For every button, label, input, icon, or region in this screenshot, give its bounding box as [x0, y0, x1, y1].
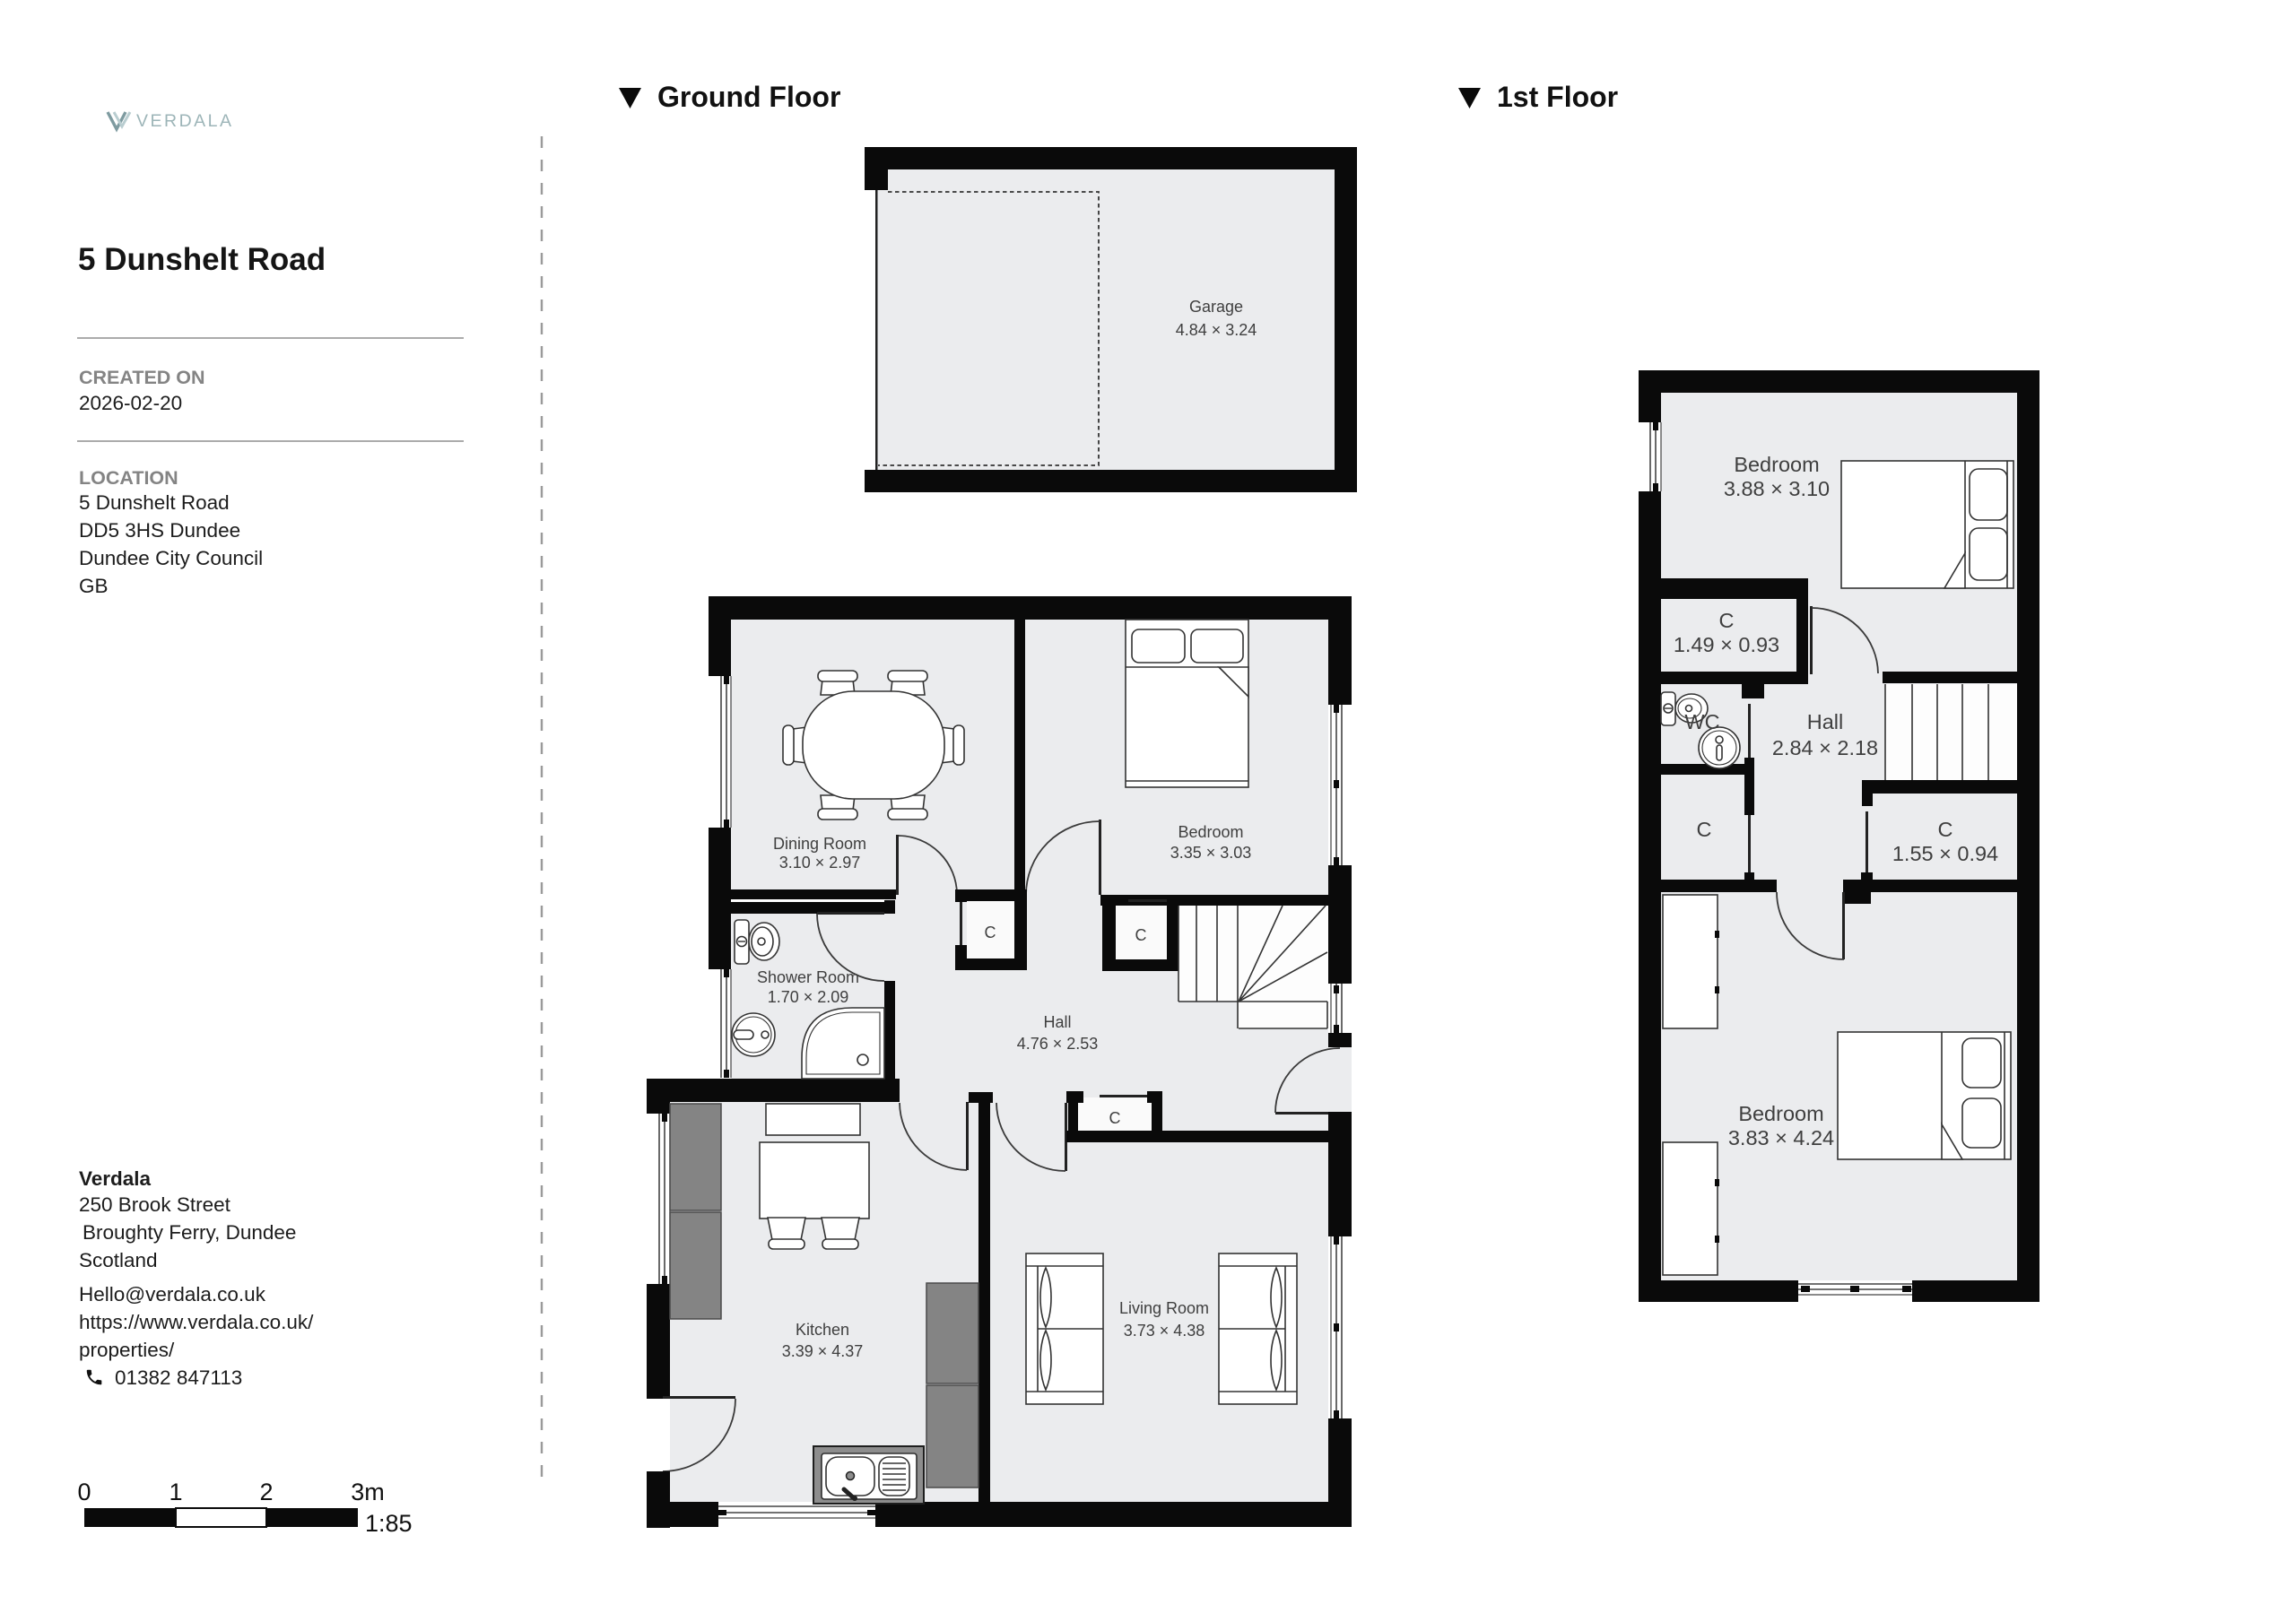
svg-text:C: C	[1938, 818, 1953, 841]
svg-text:2: 2	[259, 1479, 273, 1505]
svg-text:2.84 × 2.18: 2.84 × 2.18	[1772, 736, 1878, 759]
svg-text:Kitchen: Kitchen	[796, 1321, 849, 1339]
svg-text:Hall: Hall	[1043, 1013, 1071, 1031]
svg-text:3.73 × 4.38: 3.73 × 4.38	[1124, 1322, 1205, 1340]
svg-text:4.84 × 3.24: 4.84 × 3.24	[1176, 321, 1257, 339]
svg-text:3.83 × 4.24: 3.83 × 4.24	[1728, 1126, 1834, 1149]
svg-text:properties/: properties/	[79, 1339, 175, 1361]
svg-text:C: C	[1109, 1109, 1121, 1127]
svg-text:VERDALA: VERDALA	[136, 111, 234, 131]
svg-text:Living Room: Living Room	[1119, 1299, 1209, 1317]
svg-text:5 Dunshelt Road: 5 Dunshelt Road	[78, 242, 326, 277]
svg-text:3m: 3m	[351, 1479, 385, 1505]
svg-text:Scotland: Scotland	[79, 1249, 158, 1271]
svg-text:3.35 × 3.03: 3.35 × 3.03	[1170, 844, 1252, 862]
svg-text:1st Floor: 1st Floor	[1497, 81, 1618, 113]
svg-text:01382 847113: 01382 847113	[115, 1366, 242, 1389]
svg-text:1.55 × 0.94: 1.55 × 0.94	[1892, 842, 1998, 865]
svg-text:Ground Floor: Ground Floor	[657, 81, 840, 113]
svg-text:Dundee City Council: Dundee City Council	[79, 547, 263, 569]
svg-text:0: 0	[77, 1479, 91, 1505]
svg-text:LOCATION: LOCATION	[79, 467, 178, 489]
svg-text:1:85: 1:85	[365, 1510, 413, 1537]
svg-text:Shower Room: Shower Room	[757, 968, 859, 986]
svg-text:Verdala: Verdala	[79, 1167, 152, 1190]
svg-text:Broughty Ferry, Dundee: Broughty Ferry, Dundee	[83, 1221, 296, 1244]
svg-text:WC: WC	[1684, 710, 1719, 733]
svg-text:Dining Room: Dining Room	[773, 835, 866, 853]
svg-text:3.10 × 2.97: 3.10 × 2.97	[779, 854, 861, 872]
svg-text:1.70 × 2.09: 1.70 × 2.09	[768, 988, 849, 1006]
svg-text:CREATED ON: CREATED ON	[79, 367, 205, 388]
svg-text:Hall: Hall	[1807, 710, 1843, 733]
svg-text:250 Brook Street: 250 Brook Street	[79, 1193, 231, 1216]
svg-text:C: C	[1719, 609, 1735, 632]
svg-text:1.49 × 0.93: 1.49 × 0.93	[1674, 633, 1779, 656]
svg-text:C: C	[1135, 926, 1147, 944]
svg-text:Garage: Garage	[1189, 298, 1243, 316]
svg-text:4.76 × 2.53: 4.76 × 2.53	[1017, 1035, 1099, 1053]
svg-text:Hello@verdala.co.uk: Hello@verdala.co.uk	[79, 1283, 266, 1305]
svg-text:3.39 × 4.37: 3.39 × 4.37	[782, 1342, 864, 1360]
svg-text:5 Dunshelt Road: 5 Dunshelt Road	[79, 491, 230, 514]
svg-text:C: C	[985, 924, 996, 941]
svg-text:Bedroom: Bedroom	[1178, 823, 1243, 841]
svg-text:C: C	[1697, 818, 1712, 841]
svg-text:2026-02-20: 2026-02-20	[79, 392, 182, 414]
svg-text:GB: GB	[79, 575, 109, 597]
svg-text:3.88 × 3.10: 3.88 × 3.10	[1724, 477, 1830, 500]
svg-text:https://www.verdala.co.uk/: https://www.verdala.co.uk/	[79, 1311, 314, 1333]
svg-text:Bedroom: Bedroom	[1734, 453, 1819, 476]
svg-text:1: 1	[169, 1479, 182, 1505]
svg-text:Bedroom: Bedroom	[1738, 1102, 1823, 1125]
svg-text:DD5 3HS Dundee: DD5 3HS Dundee	[79, 519, 240, 542]
